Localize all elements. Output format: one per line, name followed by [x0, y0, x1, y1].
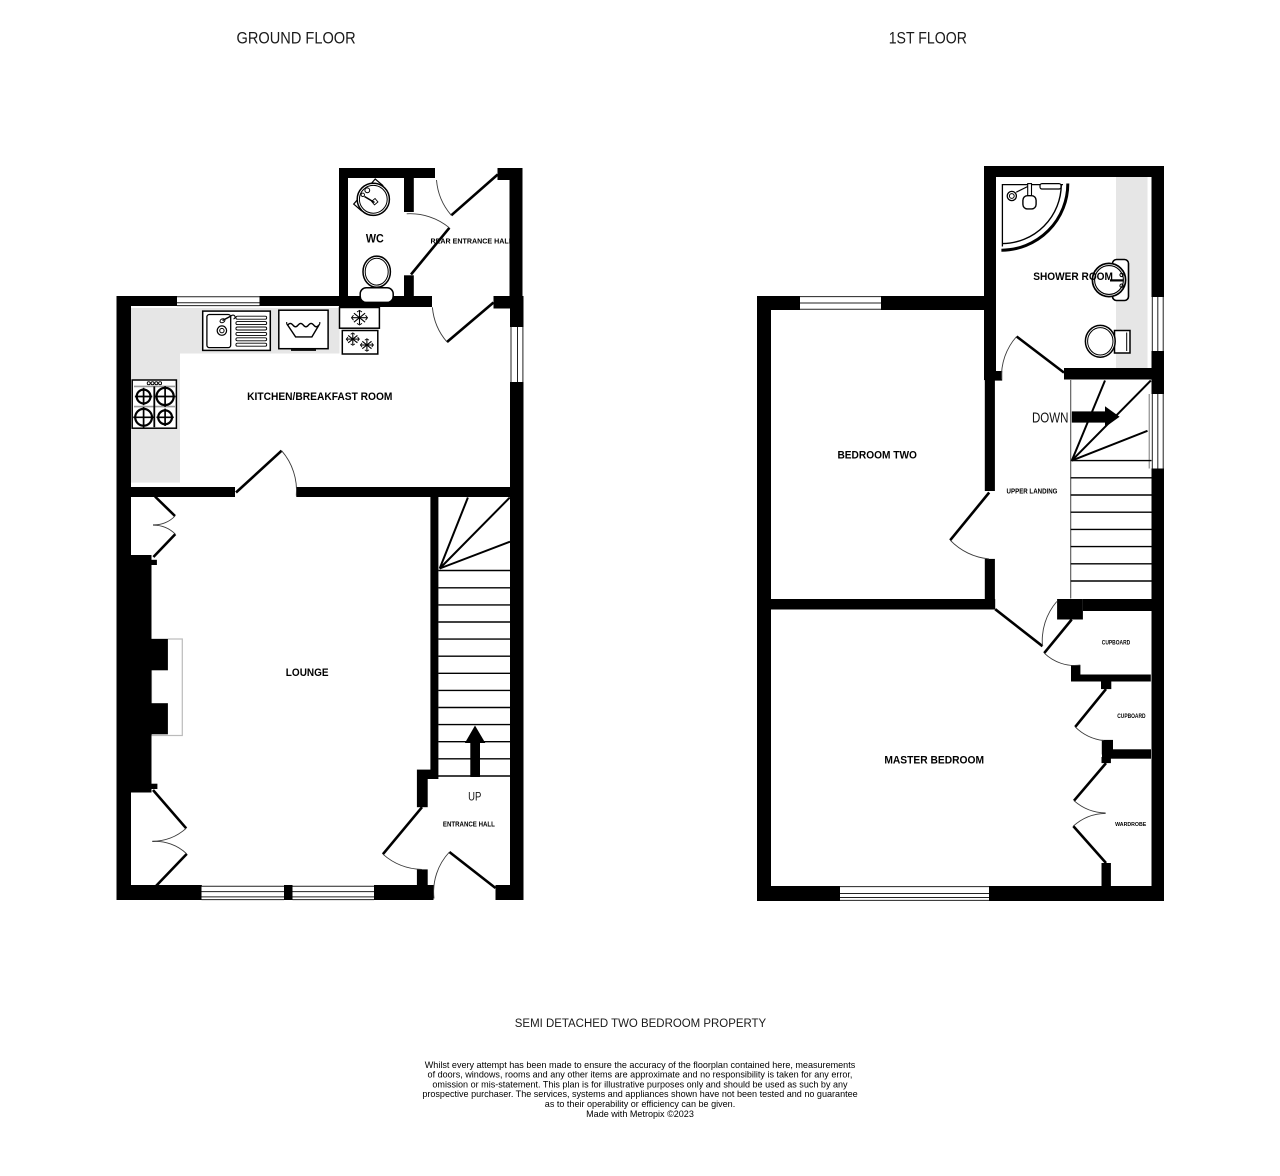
- svg-text:as to their operability or eff: as to their operability or efficiency ca…: [545, 1099, 735, 1109]
- svg-text:CUPBOARD: CUPBOARD: [1117, 713, 1146, 720]
- svg-text:omission or mis-statement. Thi: omission or mis-statement. This plan is …: [432, 1079, 848, 1089]
- svg-text:of doors, windows, rooms and a: of doors, windows, rooms and any other i…: [428, 1070, 853, 1080]
- svg-text:WARDROBE: WARDROBE: [1115, 822, 1146, 828]
- svg-text:GROUND FLOOR: GROUND FLOOR: [237, 30, 356, 48]
- svg-text:DOWN: DOWN: [1032, 409, 1069, 426]
- svg-text:SEMI DETACHED TWO BEDROOM PROP: SEMI DETACHED TWO BEDROOM PROPERTY: [515, 1016, 766, 1030]
- svg-text:1ST FLOOR: 1ST FLOOR: [889, 30, 967, 48]
- svg-text:CUPBOARD: CUPBOARD: [1102, 639, 1131, 646]
- svg-text:MASTER BEDROOM: MASTER BEDROOM: [884, 754, 984, 766]
- svg-text:ENTRANCE HALL: ENTRANCE HALL: [443, 822, 496, 829]
- svg-text:UP: UP: [468, 790, 481, 804]
- svg-text:prospective purchaser. The ser: prospective purchaser. The services, sys…: [422, 1089, 857, 1099]
- svg-text:Whilst every attempt has been: Whilst every attempt has been made to en…: [425, 1060, 856, 1070]
- svg-text:BEDROOM TWO: BEDROOM TWO: [837, 449, 917, 461]
- svg-text:UPPER LANDING: UPPER LANDING: [1007, 489, 1058, 496]
- svg-text:WC: WC: [366, 234, 384, 246]
- svg-text:Made with Metropix ©2023: Made with Metropix ©2023: [586, 1109, 694, 1119]
- svg-text:KITCHEN/BREAKFAST ROOM: KITCHEN/BREAKFAST ROOM: [247, 391, 392, 403]
- svg-text:REAR ENTRANCE HALL: REAR ENTRANCE HALL: [431, 239, 514, 246]
- svg-text:SHOWER ROOM: SHOWER ROOM: [1033, 271, 1113, 283]
- svg-text:LOUNGE: LOUNGE: [286, 667, 329, 679]
